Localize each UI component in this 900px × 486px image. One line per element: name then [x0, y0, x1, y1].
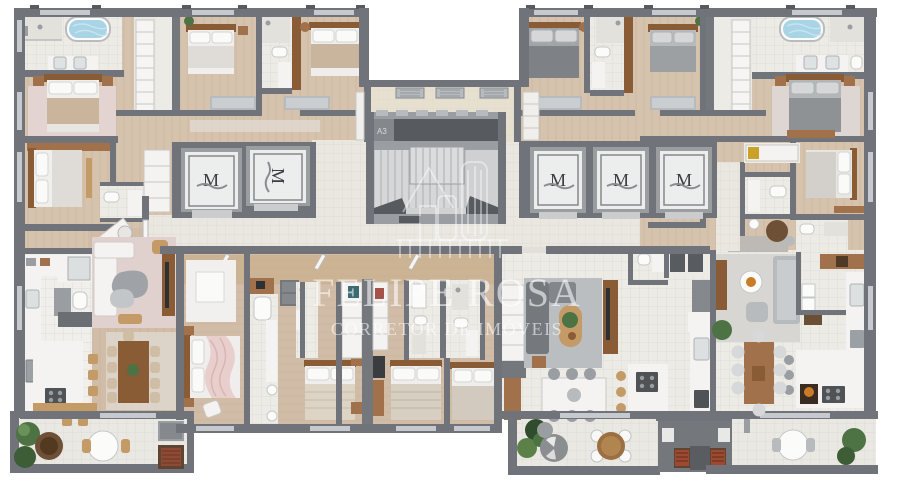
svg-text:FELIPE ROSA: FELIPE ROSA — [312, 270, 582, 315]
svg-text:CORRETOR DE IMÓVEIS: CORRETOR DE IMÓVEIS — [331, 318, 563, 339]
svg-text:M: M — [268, 168, 288, 184]
svg-text:A3: A3 — [377, 127, 387, 136]
